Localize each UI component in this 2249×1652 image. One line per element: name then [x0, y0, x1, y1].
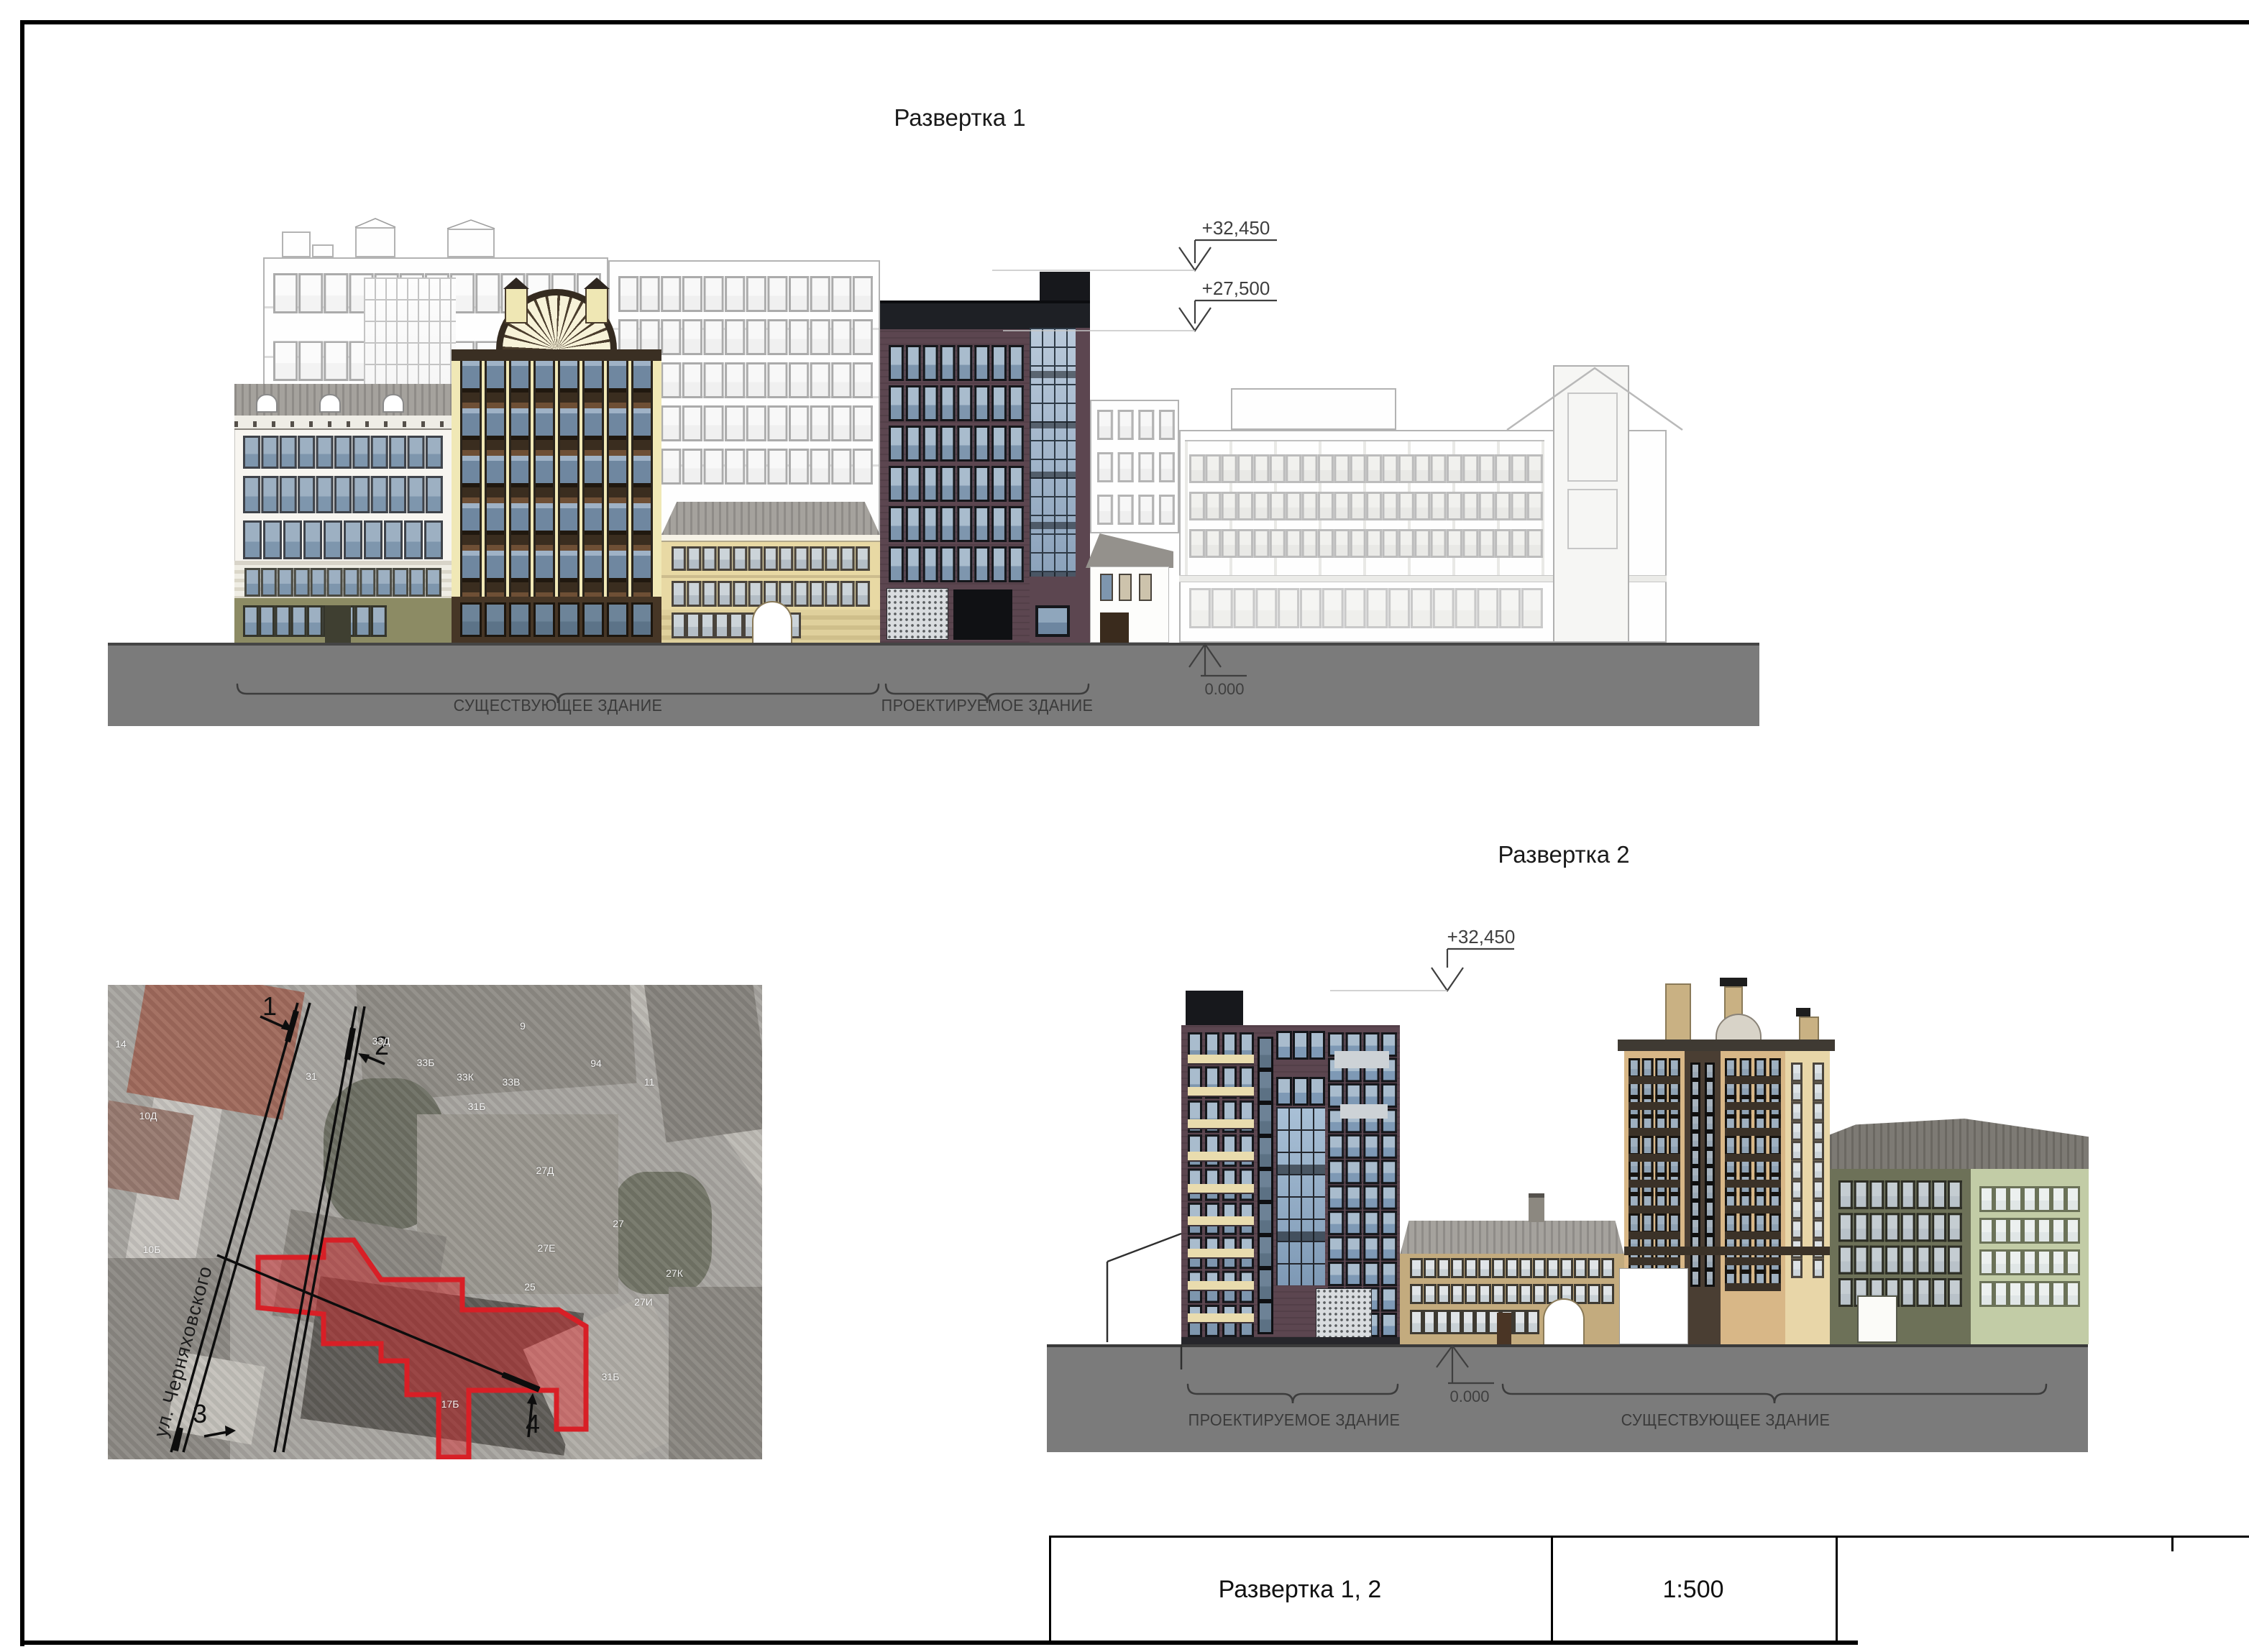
elev1-classical-dormer [319, 394, 341, 413]
elev2-proposed-balcony-fronts [1188, 1032, 1254, 1337]
elev2-label-proposed: ПРОЕКТИРУЕМОЕ ЗДАНИЕ [1153, 1410, 1437, 1430]
elev1-beige-cornice [661, 535, 880, 542]
elev2-tantall-slab [1624, 1247, 1830, 1255]
elev1-proposed-curtain-wall [1030, 328, 1076, 577]
section-marker-1: 1 [262, 991, 277, 1022]
elev1-mark-top: +32,450 [1195, 217, 1277, 239]
elev2-tan3-chimney [1529, 1193, 1544, 1222]
elev1-small-building-door [1100, 612, 1129, 643]
elev2-tan3-windows-row2 [1410, 1284, 1614, 1304]
elev1-outline-classical-row3 [1189, 529, 1543, 558]
elev1-proposed-garage-door [953, 589, 1012, 640]
elevation1-title: Развертка 1 [892, 104, 1028, 132]
frame-left [20, 20, 24, 1646]
elev2-olive-door [1857, 1295, 1897, 1343]
building-number: 27И [634, 1296, 653, 1308]
building-number: 27 [613, 1218, 624, 1229]
building-number: 10Б [143, 1244, 161, 1255]
building-number: 9 [520, 1020, 526, 1032]
elev2-tantall-col1-balconies [1629, 1058, 1680, 1291]
elev1-classical-ground-windows [243, 605, 387, 637]
site-plan-aerial-photo [108, 985, 762, 1459]
elev2-tantall-col3-windows [1791, 1063, 1824, 1278]
elev2-proposed-spandrel-panel [1340, 1104, 1388, 1119]
elev1-cream-cornice [452, 349, 661, 361]
elev2-sage-windows [1979, 1186, 2080, 1307]
elev2-tan3-arch [1543, 1298, 1585, 1344]
building-number: 27Д [536, 1165, 554, 1176]
elev1-outline-background-right [1090, 400, 1179, 533]
titleblock-drawing-title: Развертка 1, 2 [1049, 1576, 1551, 1604]
section-marker-4: 4 [526, 1409, 540, 1439]
elev2-olive-roof [1830, 1119, 2089, 1169]
elev1-beige-windows-row1 [672, 546, 870, 571]
elev1-proposed-roof-box [1040, 272, 1090, 300]
building-number: 31 [306, 1070, 317, 1082]
elev2-tantall-passage [1619, 1268, 1688, 1344]
elev1-cream-turret [505, 288, 528, 323]
building-number: 31Б [602, 1371, 620, 1382]
elev2-proposed-perforated-screen [1316, 1288, 1372, 1341]
elev1-outline-classical-row1 [1189, 454, 1543, 483]
elev1-classical-dormer [256, 394, 278, 413]
elev2-tan3-windows-row1 [1410, 1258, 1614, 1278]
titleblock-scale: 1:500 [1551, 1576, 1836, 1604]
elev1-outline-parapet-3 [355, 227, 395, 257]
frame-bottom [20, 1640, 1858, 1645]
frame-top [20, 20, 2249, 24]
elev2-tantall-col2-balconies [1725, 1058, 1781, 1291]
elev1-small-building-window [1139, 574, 1152, 601]
elev1-classical-windows-row4 [244, 568, 441, 597]
elev2-olive-windows [1838, 1180, 1962, 1307]
elev1-cream-turret [585, 288, 608, 323]
elev1-label-existing: СУЩЕСТВУЮЩЕЕ ЗДАНИЕ [416, 696, 700, 715]
building-number: 27К [666, 1267, 683, 1279]
elev1-beige-band [661, 575, 880, 578]
elev1-mark-mid: +27,500 [1195, 277, 1277, 300]
elev1-outline-parapet-2 [312, 244, 334, 257]
elev2-proposed-roof-box [1186, 991, 1243, 1025]
building-number: 33К [457, 1071, 474, 1083]
elev2-mark-top: +32,450 [1445, 926, 1517, 948]
elev1-outline-tower-panel [1567, 489, 1618, 549]
elev2-tan3-windows-row3 [1410, 1310, 1539, 1334]
building-number: 10Д [139, 1110, 157, 1121]
elev1-classical-windows-row1 [243, 436, 443, 469]
elev1-small-building-window [1119, 574, 1132, 601]
elev2-tan3-door [1497, 1313, 1511, 1344]
building-number: 17Б [441, 1398, 459, 1410]
aerial-noise-overlay [108, 985, 762, 1459]
elev1-beige-arched-entrance [752, 601, 792, 643]
elev2-tantall-chimney-cap [1796, 1008, 1810, 1017]
elev1-classical-cornice [234, 416, 452, 430]
building-number: 31Б [468, 1101, 486, 1112]
elev1-classical-dormer [383, 394, 404, 413]
elev2-proposed-upper-windows [1276, 1031, 1325, 1106]
drawing-sheet: Развертка 1 [0, 0, 2249, 1652]
section-marker-3: 3 [193, 1399, 207, 1429]
elev2-mark-zero: 0.000 [1447, 1387, 1493, 1406]
elev1-outline-parapet-1 [282, 231, 311, 257]
elev2-proposed-curtain-wall [1276, 1107, 1325, 1285]
elev1-beige-roof [661, 502, 880, 535]
elev2-proposed-spandrel-panel [1334, 1051, 1389, 1068]
elev1-classical-entrance-door [325, 605, 351, 643]
elev2-tantall-cornice [1618, 1040, 1835, 1051]
elev1-cream-windows-balconies [460, 361, 653, 598]
elev2-tan3-roof [1400, 1221, 1624, 1255]
titleblock-top-line [1049, 1536, 2249, 1538]
elev1-classical-windows-row2 [243, 476, 443, 513]
elev1-outline-classical-ground [1189, 588, 1543, 635]
elev1-label-proposed: ПРОЕКТИРУЕМОЕ ЗДАНИЕ [846, 696, 1130, 715]
building-number: 14 [115, 1038, 127, 1050]
elev2-label-existing: СУЩЕСТВУЮЩЕЕ ЗДАНИЕ [1584, 1410, 1868, 1430]
elev1-mark-zero: 0.000 [1199, 680, 1250, 699]
elevation2-title: Развертка 2 [1495, 841, 1632, 868]
elev1-outline-classical-parapet [1231, 388, 1396, 430]
elev1-outline-tower-panel [1567, 393, 1618, 482]
elev1-small-building-window [1100, 574, 1113, 601]
elev1-proposed-parapet [880, 300, 1090, 329]
titleblock-divider [1836, 1536, 1838, 1642]
elev1-cream-storefront [460, 602, 653, 637]
building-number: 11 [644, 1076, 655, 1088]
elev2-ground [1047, 1344, 2088, 1452]
elev1-small-building-roof [1086, 533, 1173, 568]
elev2-tantall-chimney-cap [1720, 978, 1747, 986]
building-number: 27Е [538, 1242, 556, 1254]
building-number: 25 [524, 1281, 536, 1293]
elev1-classical-windows-row3 [243, 520, 443, 559]
elev2-proposed-base [1181, 1337, 1400, 1344]
elev1-proposed-windows [889, 345, 1024, 582]
building-number: 33В [503, 1076, 521, 1088]
elev2-tantall-chimney [1665, 983, 1691, 1044]
elev1-outline-classical-row2 [1189, 492, 1543, 520]
elev1-proposed-perforated-screen [887, 588, 948, 640]
building-number: 33Д [372, 1035, 390, 1047]
elev1-outline-parapet-4 [447, 229, 495, 257]
building-number: 94 [590, 1057, 602, 1069]
building-number: 33Б [417, 1057, 435, 1068]
elev2-proposed-pier-windows [1258, 1037, 1273, 1334]
titleblock-tick [2171, 1536, 2174, 1551]
elev1-proposed-base-window [1035, 605, 1070, 637]
